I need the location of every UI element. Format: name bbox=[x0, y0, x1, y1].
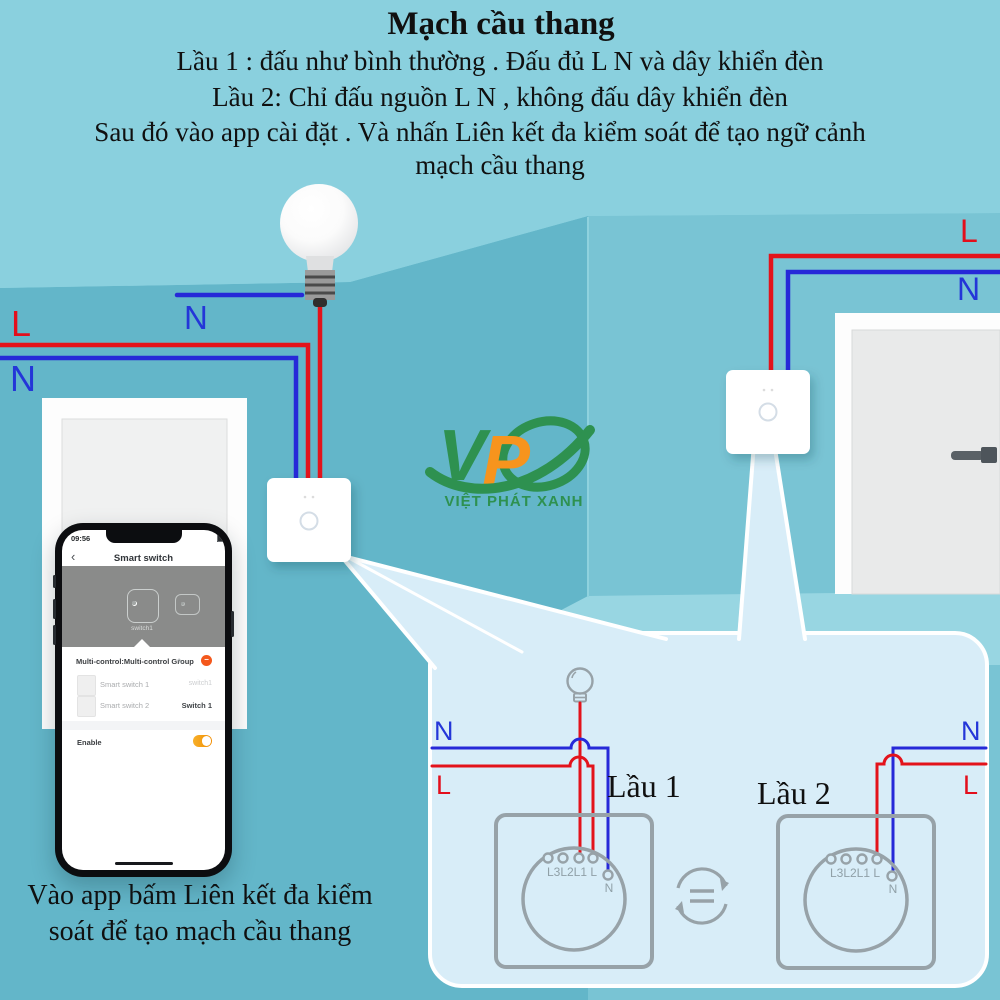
caption-line-2: soát để tạo mạch cầu thang bbox=[49, 916, 351, 948]
instruction-line-1: Lầu 1 : đấu như bình thường . Đấu đủ L N… bbox=[177, 46, 824, 77]
brand-logo: V P VIỆT PHÁT XANH bbox=[424, 406, 604, 521]
diagram-left-live-label: L bbox=[436, 770, 451, 801]
diagram-right-live-label: L bbox=[963, 770, 978, 801]
phone-screen: 09:56 ‹ Smart switch bbox=[62, 530, 225, 870]
instruction-line-4: mạch cầu thang bbox=[415, 150, 584, 181]
smart-switch-floor1 bbox=[267, 478, 351, 562]
device-name: Smart switch 1 bbox=[100, 680, 149, 689]
logo-mark: V P bbox=[424, 406, 604, 496]
left-live-label: L bbox=[11, 303, 31, 345]
floor1-label: Lầu 1 bbox=[607, 768, 681, 805]
enable-toggle[interactable] bbox=[193, 735, 212, 747]
smartphone: 09:56 ‹ Smart switch bbox=[55, 523, 232, 877]
phone-power-button bbox=[231, 611, 234, 637]
switch1-neutral-terminal-label: N bbox=[605, 881, 614, 895]
group-row[interactable]: Smart switch 2 Switch 1 bbox=[62, 694, 225, 715]
right-neutral-label: N bbox=[957, 271, 980, 308]
floor2-label: Lầu 2 bbox=[757, 775, 831, 812]
smart-switch-floor2 bbox=[726, 370, 810, 454]
switch2-terminal-labels: L3L2L1 L bbox=[830, 866, 880, 880]
app-title: Smart switch bbox=[114, 553, 173, 564]
device-value: switch1 bbox=[189, 680, 212, 687]
diagram-right-neutral-label: N bbox=[961, 716, 981, 747]
remove-icon[interactable]: − bbox=[201, 655, 212, 666]
left-neutral-label: N bbox=[10, 358, 36, 400]
edit-icon[interactable]: ✎ bbox=[177, 657, 183, 666]
battery-icon bbox=[217, 534, 225, 543]
page-title: Mạch cầu thang bbox=[387, 6, 614, 43]
logo-subtitle: VIỆT PHÁT XANH bbox=[424, 493, 604, 510]
callout-bubble bbox=[430, 633, 987, 986]
phone-volume-down-button bbox=[53, 625, 56, 645]
diagram-left-neutral-label: N bbox=[434, 716, 454, 747]
switch-preview-label: switch1 bbox=[119, 625, 165, 632]
ceiling-neutral-label: N bbox=[184, 299, 208, 337]
back-button[interactable]: ‹ bbox=[71, 550, 75, 563]
switch-preview-selected[interactable] bbox=[127, 589, 159, 623]
phone-volume-up-button bbox=[53, 599, 56, 619]
device-preview-panel: switch1 bbox=[62, 566, 225, 647]
group-row[interactable]: Smart switch 1 switch1 bbox=[62, 673, 225, 694]
switch-preview-secondary[interactable] bbox=[175, 594, 200, 615]
caption-line-1: Vào app bấm Liên kết đa kiểm bbox=[27, 880, 372, 912]
device-thumbnail bbox=[77, 696, 96, 717]
right-live-label: L bbox=[960, 213, 978, 250]
right-door bbox=[835, 313, 1000, 594]
toggle-knob bbox=[202, 736, 212, 746]
status-time: 09:56 bbox=[71, 534, 90, 543]
home-indicator[interactable] bbox=[115, 862, 173, 866]
switch1-terminal-labels: L3L2L1 L bbox=[547, 865, 597, 879]
device-thumbnail bbox=[77, 675, 96, 696]
door-handle bbox=[951, 451, 984, 460]
phone-notch bbox=[106, 530, 182, 543]
phone-mute-switch bbox=[53, 575, 56, 588]
section-divider bbox=[62, 721, 225, 730]
switch2-neutral-terminal-label: N bbox=[889, 882, 898, 896]
device-name: Smart switch 2 bbox=[100, 701, 149, 710]
poster: Mạch cầu thang Lầu 1 : đấu như bình thườ… bbox=[0, 0, 1000, 1000]
panel-pointer bbox=[133, 639, 151, 648]
enable-label: Enable bbox=[77, 738, 102, 747]
instruction-line-2: Lầu 2: Chỉ đấu nguồn L N , không đấu dây… bbox=[212, 82, 788, 113]
device-value: Switch 1 bbox=[182, 701, 212, 710]
instruction-line-3: Sau đó vào app cài đặt . Và nhấn Liên kế… bbox=[94, 117, 865, 148]
